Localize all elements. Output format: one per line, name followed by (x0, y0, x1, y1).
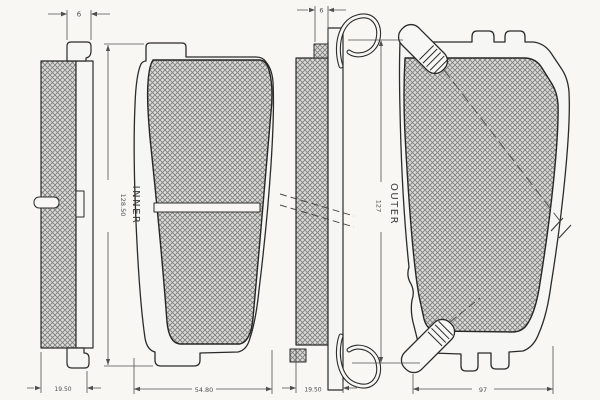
inner-pad-front-view: 128.50 INNER 54.80 (104, 43, 273, 394)
friction-material-front (148, 60, 272, 344)
outer-pad-side-view: 6 19.50 (280, 6, 379, 394)
dim-text-inner-thickness: 19.50 (54, 386, 71, 393)
pad-top-nub (314, 44, 328, 58)
friction-material-front (404, 58, 558, 332)
dim-text-inner-width: 54.80 (195, 386, 214, 394)
inner-pad-side-view: 6 19.50 (27, 10, 110, 393)
outer-label: OUTER (388, 183, 399, 225)
drawing-sheet: 6 19.50 128.50 INNER 54.80 (0, 0, 600, 400)
bottom-clip-retainer (290, 349, 306, 362)
wear-slot-side (34, 197, 59, 208)
dim-text-outer-tab-width: 6 (319, 7, 323, 15)
friction-material-side (296, 58, 328, 345)
dim-text-outer-thickness: 19.50 (304, 387, 321, 394)
shim-clip-detail (76, 191, 84, 217)
brake-pad-technical-drawing: 6 19.50 128.50 INNER 54.80 (0, 0, 600, 400)
bottom-spring-clip (338, 336, 378, 386)
wear-slot-front (154, 203, 260, 212)
dim-text-inner-tab-width: 6 (77, 11, 82, 19)
outer-pad-front-view: 127 OUTER 97 (348, 20, 571, 394)
plate-top-tab (67, 42, 91, 61)
top-spring-clip (338, 16, 378, 66)
plate-bottom-tab (67, 348, 89, 368)
dim-text-inner-height: 128.50 (119, 194, 127, 217)
dim-text-outer-width: 97 (479, 386, 487, 394)
inner-label: INNER (130, 186, 141, 225)
dim-text-outer-height: 127 (375, 200, 383, 212)
